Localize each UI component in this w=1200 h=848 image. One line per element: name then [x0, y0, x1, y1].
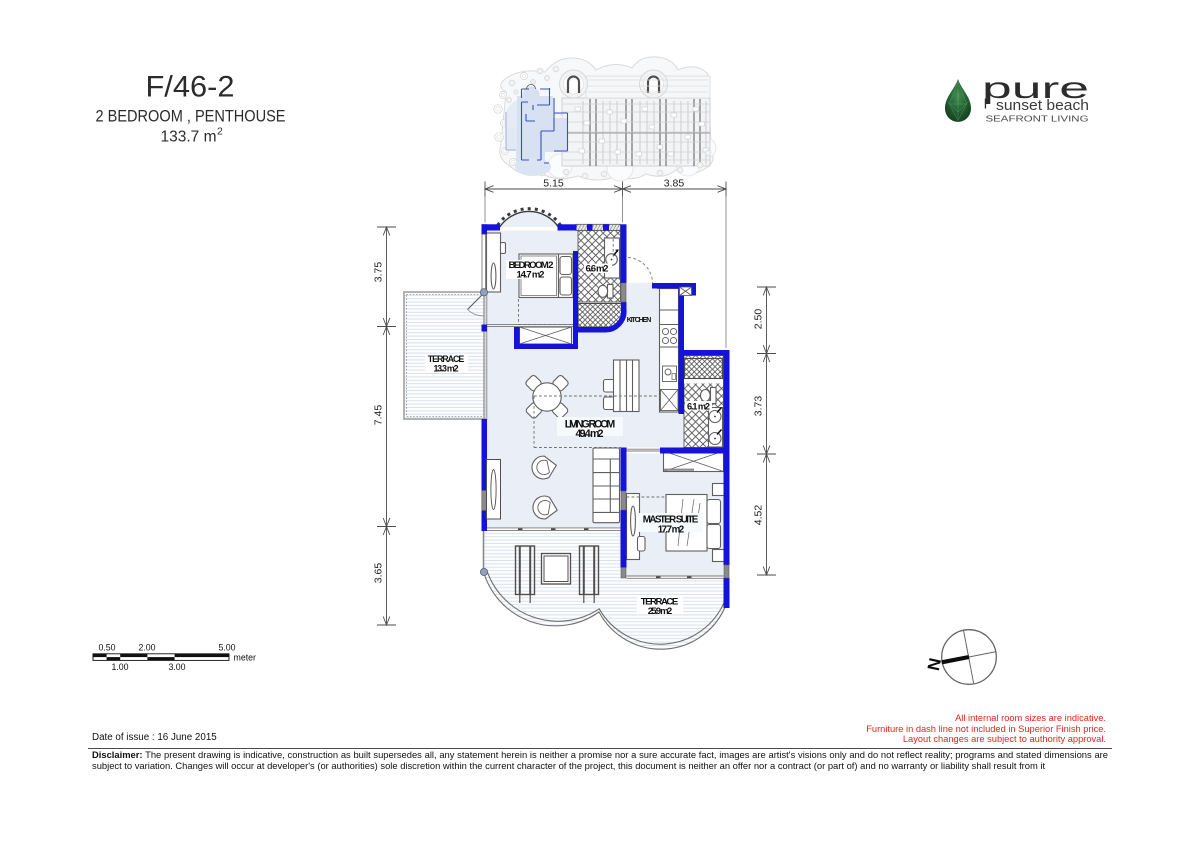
- svg-text:2: 2: [217, 126, 223, 138]
- svg-text:2 BEDROOM , PENTHOUSE: 2 BEDROOM , PENTHOUSE: [96, 107, 286, 126]
- svg-text:6.1 m2: 6.1 m2: [687, 402, 710, 412]
- svg-text:14.7 m2: 14.7 m2: [517, 270, 545, 281]
- svg-text:6.6 m2: 6.6 m2: [586, 264, 609, 275]
- svg-text:SEAFRONT LIVING: SEAFRONT LIVING: [986, 115, 1089, 124]
- svg-text:meter: meter: [234, 653, 257, 663]
- svg-text:7.45: 7.45: [373, 405, 385, 426]
- svg-text:F/46-2: F/46-2: [146, 71, 235, 104]
- svg-text:4.52: 4.52: [753, 505, 765, 526]
- svg-text:25.9 m2: 25.9 m2: [648, 606, 673, 617]
- svg-text:1.00: 1.00: [111, 662, 128, 672]
- svg-text:2.00: 2.00: [138, 643, 155, 653]
- svg-text:0.50: 0.50: [98, 643, 115, 653]
- svg-text:5.00: 5.00: [218, 643, 235, 653]
- svg-text:13.3 m2: 13.3 m2: [434, 364, 459, 374]
- svg-text:49.4 m2: 49.4 m2: [576, 428, 604, 440]
- svg-text:3.85: 3.85: [664, 178, 685, 190]
- svg-text:sunset beach: sunset beach: [996, 97, 1089, 114]
- svg-text:3.00: 3.00: [168, 662, 185, 672]
- svg-text:5.15: 5.15: [543, 178, 564, 190]
- svg-text:3.73: 3.73: [753, 396, 765, 417]
- svg-text:2.50: 2.50: [753, 309, 765, 330]
- svg-text:3.65: 3.65: [373, 563, 385, 584]
- svg-text:17.7 m2: 17.7 m2: [658, 525, 685, 536]
- svg-text:KITCHEN: KITCHEN: [627, 317, 652, 324]
- svg-text:TERRACE: TERRACE: [428, 354, 465, 364]
- svg-text:3.75: 3.75: [373, 262, 385, 283]
- svg-text:133.7 m: 133.7 m: [161, 129, 217, 146]
